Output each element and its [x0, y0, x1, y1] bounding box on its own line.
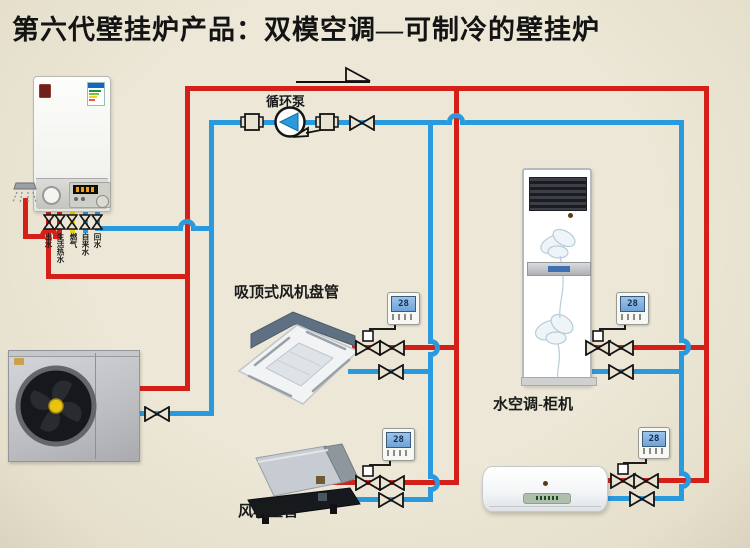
valve-icon [608, 340, 634, 356]
cabinet-louvre [529, 177, 587, 211]
wall-split-display [523, 493, 571, 504]
thermostat-fancoil: 28 [382, 428, 415, 461]
thermostat-cabinet: 28 [616, 292, 649, 325]
boiler-logo [39, 84, 51, 98]
diagram-canvas: 第六代壁挂炉产品：双模空调—可制冷的壁挂炉 [0, 0, 750, 548]
thermostat-buttons [392, 314, 415, 320]
cabinet-logo [568, 213, 573, 218]
pipe-bridge-return-over-riser [178, 219, 196, 231]
heat-pump-fan-icon [14, 364, 98, 448]
wall-split-logo [543, 481, 548, 486]
valve-icon [629, 491, 655, 507]
boiler-unit [33, 76, 111, 212]
connection-label: 出水 [44, 233, 52, 248]
cabinet-flower-art [528, 220, 588, 380]
valve-icon [608, 364, 634, 380]
pipe-return-horizontal-a [95, 226, 178, 231]
valve-icon [54, 214, 66, 230]
pipe-supply-horizontal [46, 274, 190, 279]
thermostat-display: 28 [642, 431, 666, 447]
pipe-hot-header [185, 86, 709, 91]
boiler-button [81, 197, 85, 201]
valve-icon [378, 364, 404, 380]
pipe-right-hot-riser [704, 86, 709, 483]
thermostat-buttons [387, 450, 410, 456]
valve-icon [379, 475, 405, 491]
flow-arrow-right-icon [296, 62, 374, 88]
boiler-display [73, 185, 98, 194]
pipe-jump-right-riser-1 [679, 338, 691, 356]
boiler-button [74, 197, 78, 201]
valve-icon [633, 473, 659, 489]
pipe-bridge-pumpline-over-riser [447, 113, 465, 125]
thermostat-display: 28 [620, 296, 645, 312]
connection-label: 生活热水 [56, 233, 64, 263]
cabinet-control-strip [527, 262, 591, 276]
valve-icon [349, 115, 375, 131]
wall-split-unit [482, 466, 608, 512]
pipe-union-icon [239, 109, 265, 135]
cabinet-label: 水空调-柜机 [493, 393, 573, 414]
motorized-valve-icon [355, 330, 381, 356]
valve-icon [379, 340, 405, 356]
thermostat-display: 28 [386, 432, 411, 448]
pipe-union-icon [314, 109, 340, 135]
connection-label: 自来水 [81, 233, 89, 256]
pipe-mid-hot-riser [454, 86, 459, 485]
cabinet-base [521, 377, 597, 386]
boiler-control-panel [69, 182, 111, 208]
connection-label: 燃气 [69, 233, 77, 248]
boiler-knob [96, 195, 109, 208]
valve-icon [66, 214, 78, 230]
fan-coil-label: 风机盘管 [238, 500, 298, 521]
motorized-valve-icon [355, 465, 381, 491]
ceiling-cassette-unit [233, 308, 363, 408]
cabinet-ac-unit [522, 168, 592, 386]
valve-icon [144, 406, 170, 422]
thermostat-wallsplit: 28 [638, 427, 670, 459]
valve-icon [79, 214, 91, 230]
thermostat-buttons [621, 314, 644, 320]
pipe-pump-line-b [465, 120, 684, 125]
pipe-return-riser [209, 120, 214, 416]
pipe-heatpump-supply-branch [140, 386, 190, 391]
pipe-jump-mid-riser-1 [428, 339, 440, 357]
cassette-label: 吸顶式风机盘管 [234, 281, 339, 302]
boiler-pressure-gauge [42, 186, 61, 205]
connection-label: 回水 [93, 233, 101, 248]
pipe-jump-mid-riser-2 [428, 474, 440, 492]
pipe-hot-supply-riser [185, 86, 190, 391]
page-title: 第六代壁挂炉产品：双模空调—可制冷的壁挂炉 [12, 8, 600, 47]
pipe-cabinet-cold-branch [586, 369, 684, 374]
pipe-jump-right-riser-2 [679, 471, 691, 489]
boiler-control-band [36, 178, 108, 209]
thermostat-display: 28 [391, 296, 416, 312]
fan-coil-unit [238, 438, 368, 538]
boiler-energy-label [87, 82, 105, 106]
pipe-mid-cold-riser-b [428, 357, 433, 474]
thermostat-cassette: 28 [387, 292, 420, 325]
shower-head-icon [8, 180, 42, 206]
valve-icon [378, 492, 404, 508]
pump-label: 循环泵 [266, 91, 305, 110]
valve-icon [91, 214, 103, 230]
thermostat-buttons [643, 448, 665, 454]
pipe-right-cold-riser-a [679, 120, 684, 338]
pipe-mid-cold-riser-a [428, 120, 433, 339]
